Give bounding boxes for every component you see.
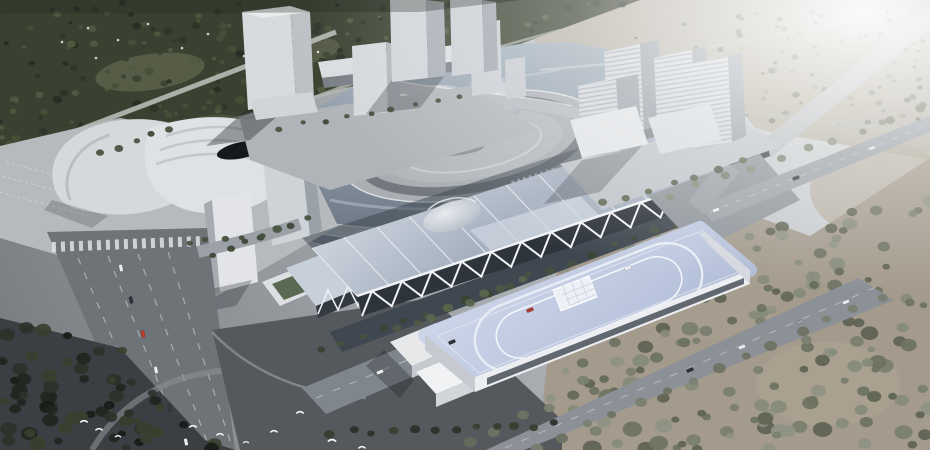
aerial-rendering: [0, 0, 930, 450]
haze-overlay: [0, 0, 930, 450]
scene-canvas: [0, 0, 930, 450]
